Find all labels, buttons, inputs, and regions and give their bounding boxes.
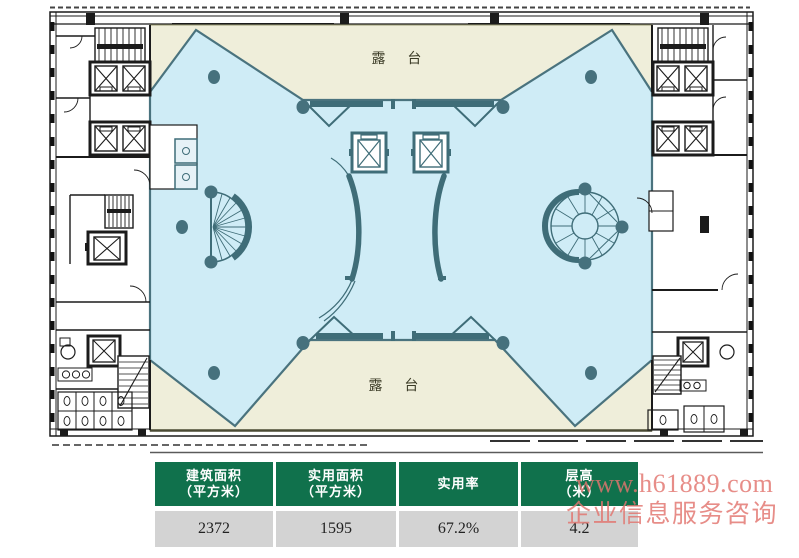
terrace-bottom-label: 露 台: [369, 377, 428, 393]
header-text: （米）: [558, 484, 600, 500]
header-gross-area: 建筑面积 （平方米）: [155, 462, 273, 506]
pantry-niche: [150, 125, 197, 189]
table-value-row: 2372 1595 67.2% 4.2: [155, 511, 641, 547]
elevator-bank: [90, 122, 150, 155]
value-floor-height: 4.2: [521, 511, 638, 547]
area-summary-table: 建筑面积 （平方米） 实用面积 （平方米） 实用率 层高 （米） 2372 15…: [155, 462, 641, 547]
terrace-top-label: 露 台: [372, 50, 431, 66]
value-gross-area: 2372: [155, 511, 273, 547]
header-text: （平方米）: [179, 484, 249, 500]
terrace-door-top: [391, 99, 395, 109]
service-elevator: [85, 232, 126, 264]
terrace-door-bottom: [391, 331, 395, 341]
header-usable-area: 实用面积 （平方米）: [276, 462, 396, 506]
page: 露 台 露 台: [0, 0, 799, 558]
value-efficiency: 67.2%: [399, 511, 518, 547]
header-text: 实用面积: [308, 468, 364, 484]
header-text: 实用率: [437, 476, 479, 492]
elevator-bank: [653, 122, 713, 155]
elevator-bank: [653, 62, 713, 95]
header-text: （平方米）: [301, 484, 371, 500]
value-usable-area: 1595: [276, 511, 396, 547]
elevator-bank: [90, 62, 150, 95]
header-efficiency: 实用率: [399, 462, 518, 506]
header-floor-height: 层高 （米）: [521, 462, 638, 506]
header-text: 建筑面积: [186, 468, 242, 484]
table-header-row: 建筑面积 （平方米） 实用面积 （平方米） 实用率 层高 （米）: [155, 462, 641, 506]
header-text: 层高: [565, 468, 593, 484]
